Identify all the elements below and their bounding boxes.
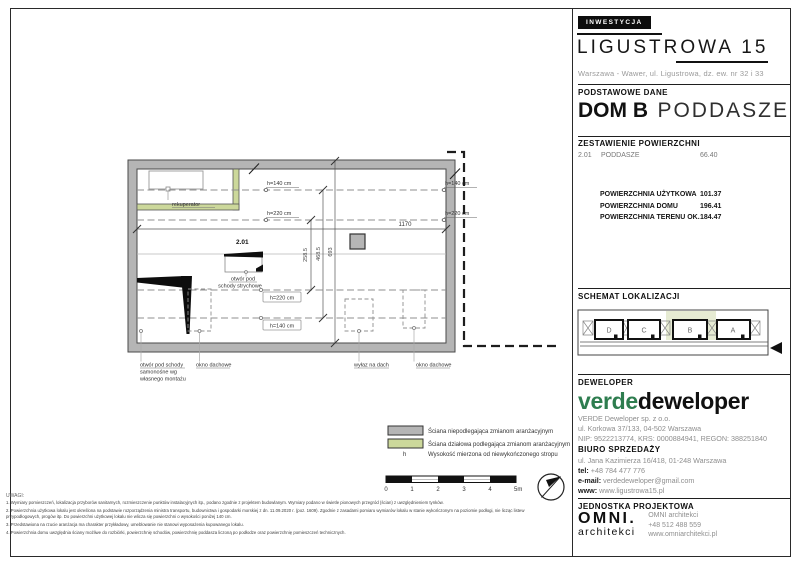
sales-address: ul. Jana Kazimierza 16/418, 01-248 Warsz… — [578, 456, 726, 466]
email-label: e-mail: — [578, 476, 601, 485]
label-node — [358, 330, 361, 333]
label-node — [442, 218, 445, 221]
stairs-label-line3: własnego montażu — [139, 377, 186, 383]
roof-window-label: okno dachowe — [196, 363, 231, 369]
section-divider — [578, 136, 790, 137]
legend-h-text: Wysokość mierzona od niewykończonego str… — [428, 452, 558, 458]
attic-hatch-label: schody strychowe — [218, 284, 262, 290]
house-level-row: DOM B PODDASZE — [578, 99, 789, 123]
note-item: 2. Powierzchnia użytkowa lokalu jest okr… — [6, 508, 551, 519]
design-line: OMNI architekci — [648, 511, 717, 521]
summary-label: POWIERZCHNIA DOMU — [600, 203, 678, 210]
legend-swatch-structural — [388, 426, 423, 435]
room-no: 2.01 — [578, 152, 592, 159]
unit-door-mark — [741, 335, 745, 339]
label-node — [259, 316, 262, 319]
omni-logo-top: OMNI. — [578, 511, 636, 527]
unit-b-label: B — [688, 328, 693, 335]
roof-window-outline — [403, 290, 425, 328]
stairs-label-line1: otwór pod schody — [140, 363, 183, 369]
rekuperator-unit — [149, 171, 203, 189]
legend-h-symbol: h — [403, 452, 406, 458]
legend-structural-text: Ściana niepodlegająca zmianom aranżacyjn… — [428, 427, 553, 435]
sales-phone: tel: +48 784 477 776 — [578, 466, 726, 476]
summary-label: POWIERZCHNIA UŻYTKOWA — [600, 191, 697, 198]
unit-d-label: D — [606, 328, 611, 335]
unit-door-mark — [651, 335, 655, 339]
room-number: 2.01 — [236, 239, 249, 246]
label-node — [413, 327, 416, 330]
design-line: +48 512 488 559 — [648, 521, 717, 531]
room-name: PODDASZE — [601, 152, 640, 159]
area-summary: POWIERZCHNIA UŻYTKOWA 101.37 POWIERZCHNI… — [600, 191, 790, 226]
scale-bar-segment — [438, 476, 464, 483]
phone-value: +48 784 477 776 — [591, 466, 645, 475]
summary-row: POWIERZCHNIA UŻYTKOWA 101.37 — [600, 191, 790, 203]
legend-swatch-partition — [388, 439, 423, 448]
note-item: 4. Powierzchnia domu uwzględnia ściany m… — [6, 530, 551, 536]
h220-label: h=220 cm — [270, 296, 295, 302]
design-unit-block: OMNI. architekci OMNI architekci +48 512… — [578, 511, 717, 540]
sales-www: www: www.ligustrowa15.pl — [578, 486, 726, 496]
section-divider — [578, 288, 790, 289]
project-address: Warszawa - Wawer, ul. Ligustrowa, dz. ew… — [578, 69, 764, 78]
developer-details: VERDE Deweloper sp. z o.o. ul. Korkowa 3… — [578, 414, 767, 444]
dimension-width-value: 1170 — [399, 222, 413, 228]
roof-window-outline — [188, 289, 211, 331]
dimension-v3-value: 693 — [328, 247, 334, 256]
dimension-v2-value: 468.5 — [316, 247, 322, 261]
project-title: LIGUSTROWA 15 — [577, 37, 768, 59]
developer-logo-black: deweloper — [638, 388, 749, 414]
h140-label: h=140 cm — [267, 181, 292, 187]
unit-door-mark — [614, 335, 618, 339]
omni-logo-bottom: architekci — [578, 527, 636, 538]
summary-value: 184.47 — [700, 214, 721, 221]
phone-label: tel: — [578, 466, 589, 475]
roof-hatch-label: wyłaz na dach — [353, 363, 389, 369]
developer-line: VERDE Deweloper sp. z o.o. — [578, 414, 767, 424]
floor-plan: rekuperator 1170 258.5 468.5 693 h=140 c… — [0, 0, 575, 565]
section-sales-office: BIURO SPRZEDAŻY — [578, 445, 660, 454]
level-name: PODDASZE — [657, 99, 789, 123]
label-node — [264, 218, 267, 221]
summary-value: 101.37 — [700, 191, 721, 198]
sales-office-details: ul. Jana Kazimierza 16/418, 01-248 Warsz… — [578, 456, 726, 496]
roof-hatch-outline — [345, 299, 373, 331]
notes-title: UWAGI: — [6, 493, 551, 499]
logo-overline — [577, 33, 662, 35]
summary-value: 196.41 — [700, 203, 721, 210]
sales-email: e-mail: verdedeweloper@gmail.com — [578, 476, 726, 486]
label-node — [264, 188, 267, 191]
scale-bar-segment — [490, 476, 516, 483]
summary-row: POWIERZCHNIA DOMU 196.41 — [600, 203, 790, 215]
summary-label: POWIERZCHNIA TERENU OK. — [600, 214, 700, 221]
legend-partition-text: Ściana działowa podlegająca zmianom aran… — [428, 440, 570, 448]
design-line: www.omniarchitekci.pl — [648, 530, 717, 540]
omni-logo: OMNI. architekci — [578, 511, 636, 540]
summary-row: POWIERZCHNIA TERENU OK. 184.47 — [600, 214, 790, 226]
h220-label: h=220 cm — [445, 211, 470, 217]
www-value: www.ligustrowa15.pl — [599, 486, 664, 495]
dimension-v1-value: 258.5 — [303, 248, 309, 262]
logo-underline — [676, 61, 768, 63]
section-areas: ZESTAWIENIE POWIERZCHNI — [578, 139, 700, 148]
label-node — [198, 330, 201, 333]
h140-label: h=140 cm — [445, 181, 470, 187]
developer-logo-green: verde — [578, 388, 638, 414]
developer-line: NIP: 9522213774, KRS: 0000884941, REGON:… — [578, 434, 767, 444]
label-node — [442, 188, 445, 191]
stair-wall-wedge — [137, 276, 186, 288]
section-divider — [578, 498, 790, 499]
section-developer: DEWELOPER — [578, 378, 633, 387]
h220-label: h=220 cm — [267, 211, 292, 217]
notes-block: UWAGI: 1. Wymiary pomieszczeń, lokalizac… — [6, 493, 551, 538]
house-name: DOM B — [578, 99, 648, 123]
www-label: www: — [578, 486, 597, 495]
roof-window-label: okno dachowe — [416, 363, 451, 369]
section-divider — [578, 84, 790, 85]
note-item: 3. Przedstawiona na rzucie aranżacja ma … — [6, 522, 551, 528]
label-node — [140, 330, 143, 333]
section-basic-data: PODSTAWOWE DANE — [578, 88, 668, 97]
chimney — [350, 234, 365, 249]
section-divider — [578, 374, 790, 375]
developer-logo: verdedeweloper — [578, 388, 749, 415]
stair-wall-wedge — [181, 276, 192, 334]
unit-a-label: A — [731, 328, 736, 335]
location-schema: D C B A — [576, 306, 790, 358]
unit-c-label: C — [641, 328, 646, 335]
email-value: verdedeweloper@gmail.com — [603, 476, 694, 485]
attic-hatch-label: otwór pod — [231, 277, 255, 283]
investment-tag: INWESTYCJA — [578, 16, 651, 29]
section-location: SCHEMAT LOKALIZACJI — [578, 292, 680, 301]
note-item: 1. Wymiary pomieszczeń, lokalizacja przy… — [6, 500, 551, 506]
h140-label: h=140 cm — [270, 324, 295, 330]
roof-outline-dashed — [447, 152, 558, 346]
label-node — [245, 271, 248, 274]
scale-bar-segment — [386, 476, 412, 483]
rekuperator-label: rekuperator — [172, 202, 200, 208]
entrance-arrow-icon — [770, 342, 782, 354]
stairs-label-line2: samonośne wg — [140, 370, 177, 376]
developer-line: ul. Korkowa 37/133, 04-502 Warszawa — [578, 424, 767, 434]
room-area: 66.40 — [700, 152, 718, 159]
design-unit-details: OMNI architekci +48 512 488 559 www.omni… — [648, 511, 717, 540]
unit-door-mark — [698, 335, 702, 339]
hatch-wall-wedge — [224, 252, 263, 258]
